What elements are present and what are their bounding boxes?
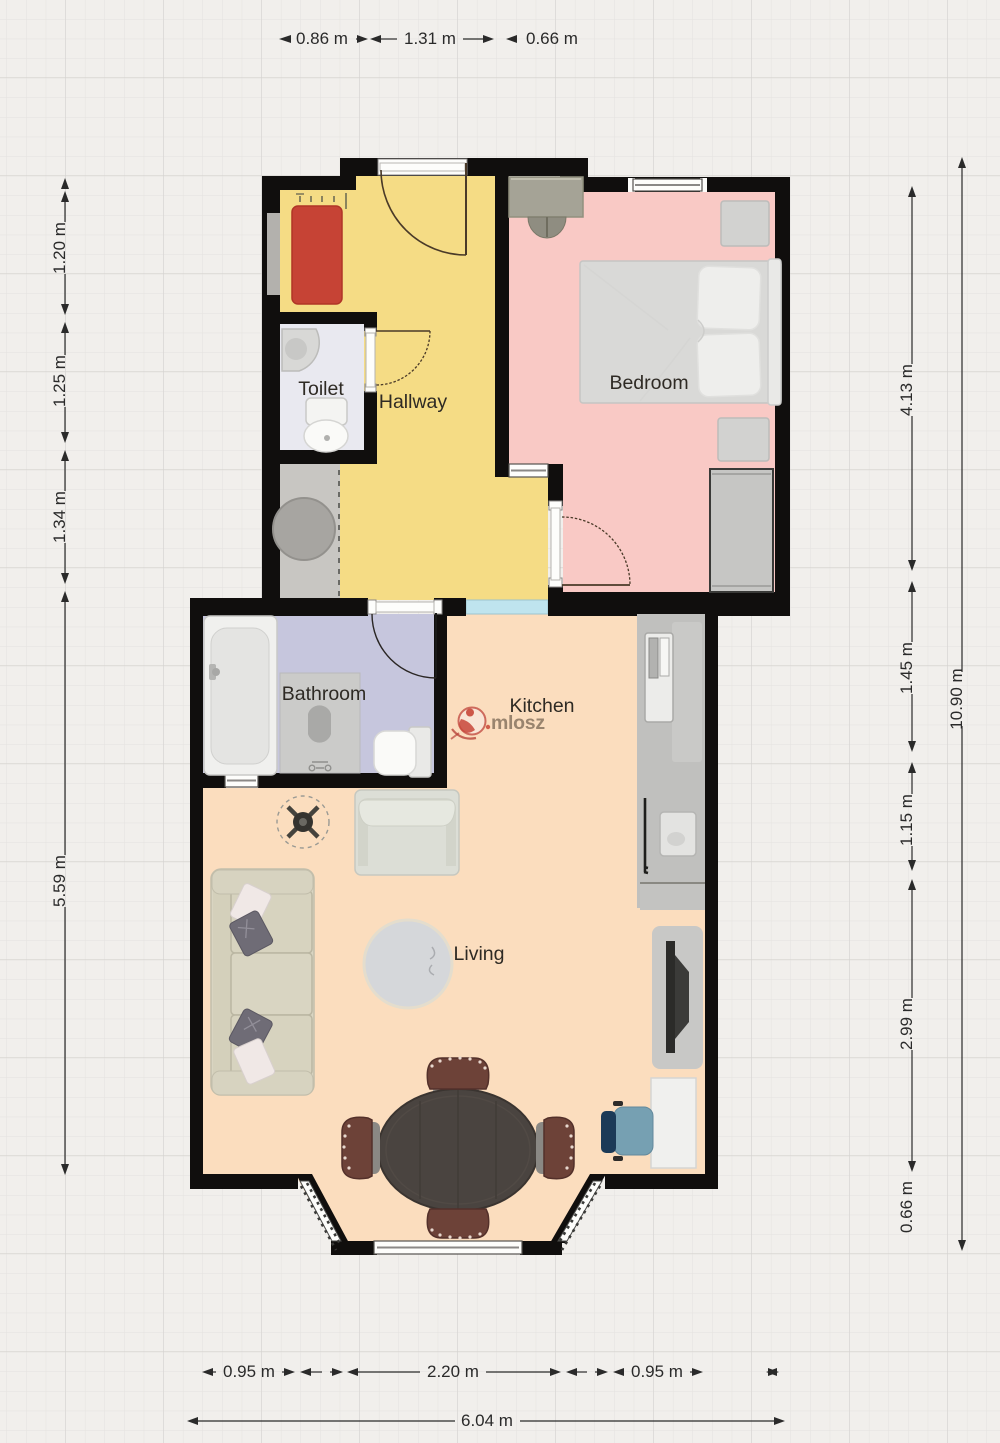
svg-text:Bedroom: Bedroom [609, 372, 688, 394]
svg-text:Bathroom: Bathroom [282, 683, 367, 705]
svg-text:mlosz: mlosz [491, 712, 545, 734]
svg-text:1.15 m: 1.15 m [897, 794, 916, 846]
svg-text:0.95 m: 0.95 m [631, 1362, 683, 1381]
svg-text:2.99 m: 2.99 m [897, 998, 916, 1050]
svg-text:1.31 m: 1.31 m [404, 29, 456, 48]
svg-text:Hallway: Hallway [379, 391, 448, 413]
svg-text:1.34 m: 1.34 m [50, 491, 69, 543]
svg-text:1.20 m: 1.20 m [50, 222, 69, 274]
svg-text:0.95 m: 0.95 m [223, 1362, 275, 1381]
svg-text:5.59 m: 5.59 m [50, 855, 69, 907]
svg-text:0.66 m: 0.66 m [897, 1181, 916, 1233]
svg-text:1.45 m: 1.45 m [897, 642, 916, 694]
svg-text:0.66 m: 0.66 m [526, 29, 578, 48]
svg-text:1.25 m: 1.25 m [50, 355, 69, 407]
svg-text:0.86 m: 0.86 m [296, 29, 348, 48]
svg-text:Living: Living [454, 943, 505, 965]
svg-text:2.20 m: 2.20 m [427, 1362, 479, 1381]
svg-text:4.13 m: 4.13 m [897, 364, 916, 416]
svg-text:6.04 m: 6.04 m [461, 1411, 513, 1430]
svg-text:Toilet: Toilet [298, 378, 344, 400]
svg-text:10.90 m: 10.90 m [947, 668, 966, 729]
